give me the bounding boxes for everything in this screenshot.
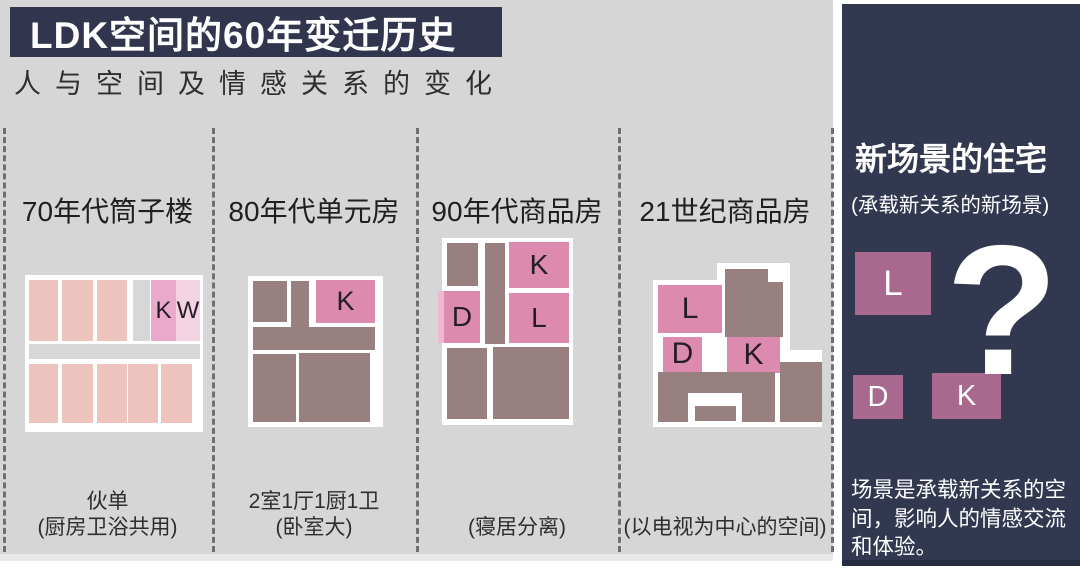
caption-90s: (寝居分离) — [416, 489, 618, 541]
room-k: K — [727, 337, 780, 373]
floorplan-70s: KW — [25, 275, 203, 432]
right-panel: 新场景的住宅 (承载新关系的新场景) L D K ? 场景是承载新关系的空间，影… — [842, 4, 1080, 566]
caption-line — [618, 489, 832, 515]
room-label: K — [530, 251, 549, 279]
panel-title: 新场景的住宅 — [855, 134, 1047, 180]
room-w: W — [176, 280, 200, 341]
room — [97, 280, 127, 341]
room-label: D — [672, 339, 694, 369]
room — [780, 362, 822, 422]
room — [485, 243, 505, 344]
room — [29, 344, 200, 359]
ldk-box-l: L — [855, 252, 931, 315]
panel-body-text: 场景是承载新关系的空间，影响人的情感交流和体验。 — [851, 476, 1073, 562]
room — [133, 280, 150, 341]
caption-80s: 2室1厅1厨1卫 (卧室大) — [212, 489, 416, 541]
slide: LDK空间的60年变迁历史 人与空间及情感关系的变化 70年代筒子楼 80年代单… — [0, 0, 1080, 574]
room — [128, 364, 158, 423]
caption-70s: 伙单 (厨房卫浴共用) — [3, 489, 212, 541]
slide-bottom-edge — [0, 554, 833, 561]
room-label: K — [337, 288, 355, 315]
room — [161, 364, 192, 423]
floorplan-90s: KLD — [442, 238, 573, 425]
column-heading-80s: 80年代单元房 — [212, 190, 416, 224]
room — [97, 364, 127, 423]
room-l: L — [658, 285, 722, 333]
room — [447, 243, 478, 286]
caption-21c: (以电视为中心的空间) — [618, 489, 832, 541]
room-label: L — [682, 294, 699, 324]
caption-line: (卧室大) — [212, 515, 416, 541]
room-k: K — [509, 242, 569, 288]
column-heading-21c: 21世纪商品房 — [618, 190, 832, 224]
caption-line: (以电视为中心的空间) — [618, 515, 832, 541]
room-l: L — [509, 293, 569, 343]
room — [29, 364, 58, 423]
room-label: K — [155, 299, 171, 323]
room — [253, 327, 375, 350]
room-label: D — [452, 303, 472, 331]
caption-line: (寝居分离) — [416, 515, 618, 541]
room — [299, 353, 370, 422]
page-title: LDK空间的60年变迁历史 — [30, 5, 456, 59]
room-label: L — [531, 304, 547, 332]
room-k: K — [316, 280, 375, 323]
caption-line: 2室1厅1厨1卫 — [212, 489, 416, 515]
room — [253, 354, 296, 422]
caption-line — [416, 489, 618, 515]
room-d: D — [663, 337, 702, 372]
column-heading-70s: 70年代筒子楼 — [3, 190, 212, 224]
floorplan-21c: LDK — [653, 263, 822, 427]
room — [695, 406, 736, 421]
room — [768, 282, 783, 337]
title-banner: LDK空间的60年变迁历史 — [10, 7, 502, 57]
ldk-box-d: D — [853, 375, 903, 419]
room — [447, 348, 487, 419]
room-label: W — [177, 299, 200, 323]
room-d: D — [444, 291, 480, 343]
room — [62, 280, 93, 341]
room — [493, 347, 569, 419]
room — [725, 269, 768, 337]
room — [253, 281, 287, 322]
column-heading-90s: 90年代商品房 — [416, 190, 618, 224]
question-mark: ? — [942, 226, 1062, 416]
room-k: K — [151, 280, 176, 341]
floorplan-80s: K — [248, 276, 383, 427]
room-label: K — [744, 340, 764, 370]
room — [29, 280, 58, 341]
page-subtitle: 人与空间及情感关系的变化 — [14, 62, 714, 96]
caption-line: 伙单 — [3, 489, 212, 515]
room — [62, 364, 93, 423]
caption-line: (厨房卫浴共用) — [3, 515, 212, 541]
